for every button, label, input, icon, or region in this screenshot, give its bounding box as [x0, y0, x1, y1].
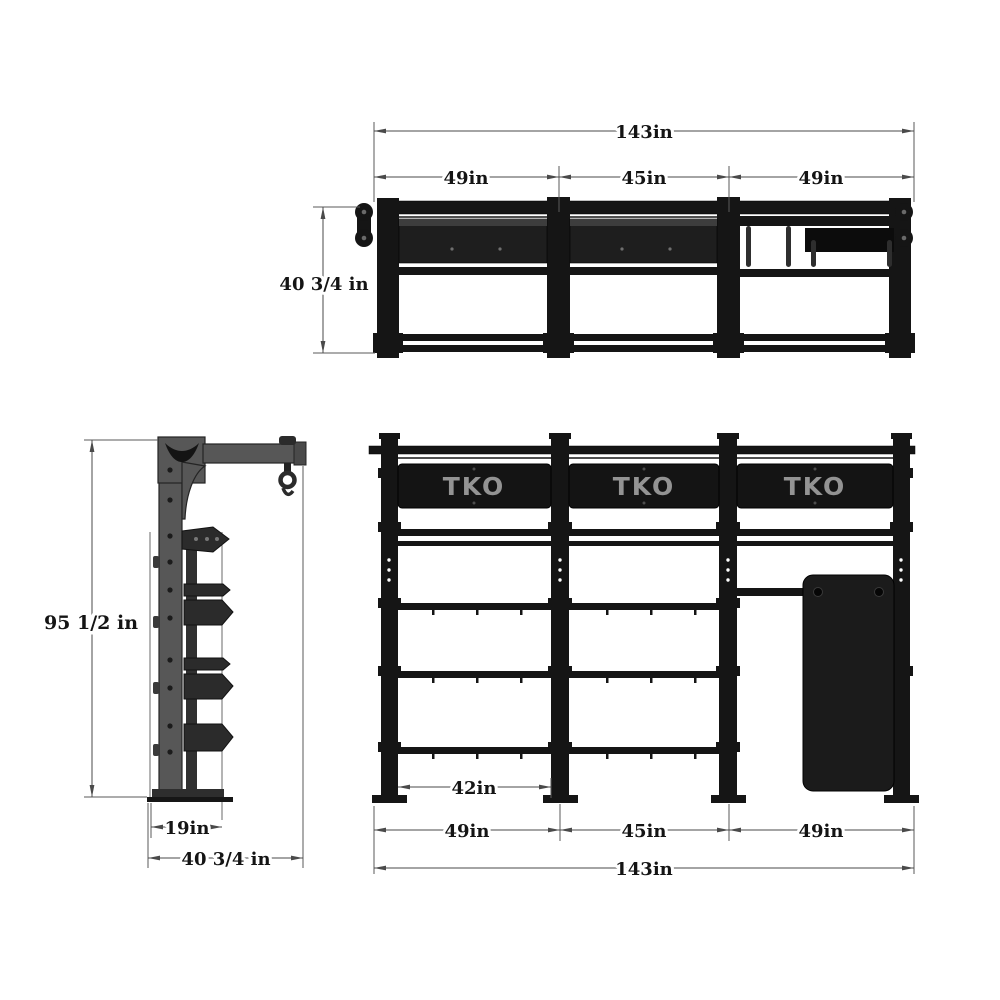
technical-drawing: 143in 49in 45in 49in 40 3/4 in — [0, 0, 1000, 1000]
storage-peg — [786, 226, 791, 267]
plan-post-3 — [717, 197, 740, 358]
front-dim-seg-1: 49in — [445, 821, 490, 842]
top-view-structure — [355, 197, 915, 358]
side-dim-height: 95 1/2 in — [44, 612, 138, 634]
top-dim-seg-1: 49in — [444, 168, 489, 189]
top-dim-seg-2: 45in — [622, 168, 667, 189]
side-arm-endcap — [294, 442, 306, 465]
shelf-bracket-3 — [184, 658, 233, 699]
front-view-dimensions: 42in 49in 45in 49in 143in — [374, 778, 914, 880]
tko-logo-1: TKO — [443, 472, 506, 501]
drawing-svg: 143in 49in 45in 49in 40 3/4 in — [0, 0, 1000, 1000]
storage-peg — [746, 226, 751, 267]
top-dim-seg-3: 49in — [799, 168, 844, 189]
snap-hook — [281, 463, 295, 494]
plan-bottom-rail-b — [381, 345, 909, 352]
shelf-bracket-4 — [184, 724, 233, 751]
side-arm — [203, 444, 303, 463]
plan-shelf-panel-2 — [570, 219, 717, 263]
front-dim-seg-2: 45in — [622, 821, 667, 842]
side-dim-depth-total: 40 3/4 in — [181, 849, 270, 870]
plan-shelf-panel-1 — [399, 219, 547, 263]
top-view: 143in 49in 45in 49in 40 3/4 in — [279, 122, 915, 358]
front-view-structure: TKO TKO TKO — [369, 433, 919, 803]
plan-accessory-tray — [805, 228, 894, 252]
swivel-mount — [279, 436, 296, 445]
tko-logo-2: TKO — [613, 472, 676, 501]
tko-logo-3: TKO — [784, 472, 847, 501]
top-dim-total: 143in — [615, 122, 673, 143]
top-rail — [380, 201, 908, 214]
side-foot — [152, 789, 224, 798]
plan-rail-2 — [570, 267, 717, 275]
storage-peg — [811, 240, 816, 267]
side-view: 95 1/2 in 19in 40 3/4 in — [44, 436, 306, 870]
top-dim-depth: 40 3/4 in — [279, 274, 368, 295]
pad-support-bar — [737, 588, 805, 596]
side-dim-depth-inner: 19in — [165, 818, 210, 839]
plan-accessory-bay — [740, 216, 894, 277]
side-foot-base — [147, 797, 233, 802]
shelf-bracket-2 — [184, 584, 233, 625]
hanging-pad — [803, 575, 894, 791]
front-rail-full-a — [398, 529, 893, 536]
storage-peg — [887, 240, 892, 267]
wall-bracket-right — [895, 203, 913, 247]
plan-rail-1 — [399, 267, 547, 275]
plan-post-2 — [547, 197, 570, 358]
plan-bottom-rail-a — [381, 334, 909, 341]
side-post-nubs — [153, 556, 159, 756]
wall-bracket-left — [355, 203, 373, 247]
pullup-bar — [369, 446, 915, 454]
side-view-structure — [147, 436, 306, 802]
front-view: TKO TKO TKO — [369, 433, 919, 880]
front-dim-total: 143in — [615, 859, 673, 880]
front-dim-seg-3: 49in — [799, 821, 844, 842]
front-rail-full-b — [398, 541, 893, 546]
front-dim-inner: 42in — [452, 778, 497, 799]
